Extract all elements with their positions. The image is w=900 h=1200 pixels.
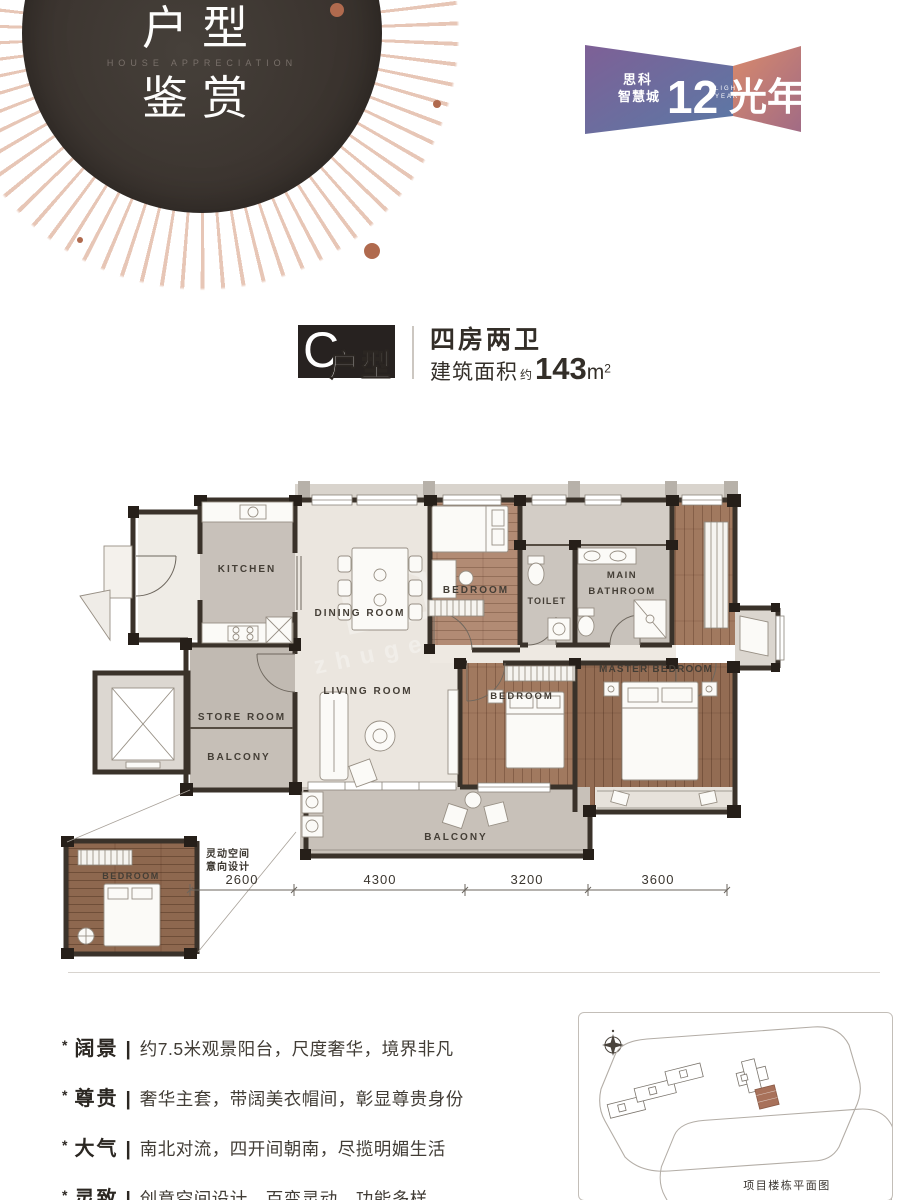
feature-row: * 尊贵 | 奢华主套，带阔美衣帽间，彰显尊贵身份 [62, 1082, 582, 1111]
feature-row: * 大气 | 南北对流，四开间朝南，尽揽明媚生活 [62, 1132, 582, 1161]
road-loop [600, 1027, 892, 1200]
feature-list: * 阔景 | 约7.5米观景阳台，尺度奢华，境界非凡 * 尊贵 | 奢华主套，带… [62, 1032, 582, 1200]
dim-3600: 3600 [642, 872, 675, 887]
building-cluster-left [603, 1063, 708, 1118]
feature-divider: | [125, 1189, 130, 1200]
room-label-master: MASTER BEDROOM [599, 664, 713, 675]
dim-4300: 4300 [364, 872, 397, 887]
asterisk-icon: * [62, 1187, 67, 1200]
room-label-balcony-bottom: BALCONY [424, 832, 487, 843]
feature-term: 大气 [74, 1132, 118, 1161]
room-label-balcony-left: BALCONY [207, 752, 270, 763]
feature-term: 尊贵 [74, 1082, 118, 1111]
feature-desc: 创意空间设计，百变灵动，功能多样 [140, 1186, 428, 1200]
asterisk-icon: * [62, 1137, 67, 1153]
room-label-inset-bedroom: BEDROOM [102, 871, 160, 881]
feature-desc: 约7.5米观景阳台，尺度奢华，境界非凡 [140, 1036, 454, 1061]
room-label-mainbath-2: BATHROOM [588, 586, 655, 597]
feature-desc: 南北对流，四开间朝南，尽揽明媚生活 [140, 1136, 446, 1161]
highlighted-building [755, 1085, 779, 1109]
inset-note-line1: 灵动空间 [206, 847, 250, 860]
feature-divider: | [125, 1139, 130, 1161]
room-label-toilet: TOILET [527, 596, 566, 606]
feature-divider: | [125, 1089, 130, 1111]
feature-term: 阔景 [74, 1032, 118, 1061]
room-label-dining: DINING ROOM [315, 608, 406, 619]
feature-term: 灵致 [74, 1182, 118, 1200]
floor-plan: zhuge [0, 0, 900, 1000]
feature-row: * 阔景 | 约7.5米观景阳台，尺度奢华，境界非凡 [62, 1032, 582, 1061]
room-label-mainbath-1: MAIN [607, 570, 637, 581]
site-plan-box: 项目楼栋平面图 [578, 1012, 893, 1200]
compass-icon [602, 1030, 624, 1056]
separator-line [68, 972, 880, 973]
feature-row: * 灵致 | 创意空间设计，百变灵动，功能多样 [62, 1182, 582, 1200]
dimension-line: 2600 4300 3200 3600 [187, 872, 730, 896]
room-label-bedroom-mid: BEDROOM [490, 691, 554, 702]
room-label-kitchen: KITCHEN [218, 564, 276, 575]
site-plan-caption: 项目楼栋平面图 [743, 1178, 831, 1192]
asterisk-icon: * [62, 1087, 67, 1103]
room-label-store: STORE ROOM [198, 712, 286, 723]
feature-desc: 奢华主套，带阔美衣帽间，彰显尊贵身份 [140, 1086, 464, 1111]
room-label-living: LIVING ROOM [323, 686, 412, 697]
asterisk-icon: * [62, 1037, 67, 1053]
dim-2600: 2600 [226, 872, 259, 887]
room-label-bedroom-top: BEDROOM [443, 585, 509, 596]
dim-3200: 3200 [511, 872, 544, 887]
feature-divider: | [125, 1039, 130, 1061]
site-plan-map: 项目楼栋平面图 [579, 1013, 892, 1200]
brochure-page: 户型 HOUSE APPRECIATION 鉴赏 思科 智慧城 12 光年 LI… [0, 0, 900, 1200]
